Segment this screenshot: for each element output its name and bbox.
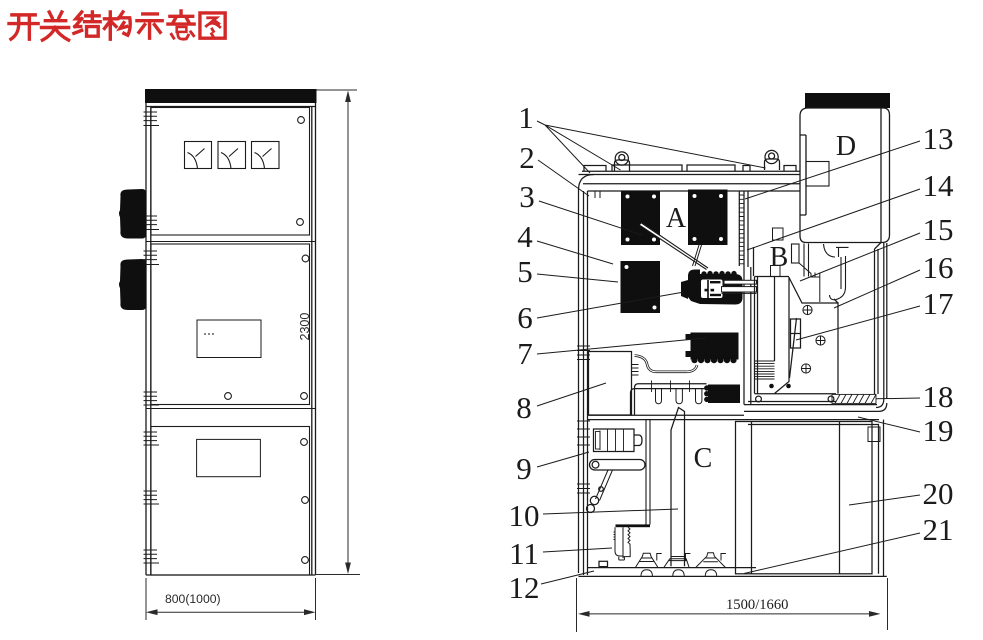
svg-text:5: 5 xyxy=(517,254,533,289)
svg-text:B: B xyxy=(770,242,789,273)
svg-text:16: 16 xyxy=(923,250,954,285)
svg-text:C: C xyxy=(694,443,713,474)
svg-text:7: 7 xyxy=(517,336,533,371)
svg-text:12: 12 xyxy=(509,570,540,605)
svg-text:17: 17 xyxy=(923,286,954,321)
svg-text:6: 6 xyxy=(517,300,533,335)
svg-text:2300: 2300 xyxy=(298,313,312,341)
svg-text:D: D xyxy=(836,131,856,162)
svg-text:10: 10 xyxy=(509,498,540,533)
svg-text:11: 11 xyxy=(509,536,539,571)
svg-text:1500/1660: 1500/1660 xyxy=(726,597,788,613)
svg-text:9: 9 xyxy=(516,451,532,486)
svg-text:20: 20 xyxy=(923,476,954,511)
svg-text:1: 1 xyxy=(518,100,534,135)
svg-text:21: 21 xyxy=(923,512,954,547)
svg-text:3: 3 xyxy=(519,179,535,214)
svg-text:800(1000): 800(1000) xyxy=(165,592,221,606)
svg-text:4: 4 xyxy=(517,219,533,254)
svg-text:A: A xyxy=(666,203,687,234)
svg-text:14: 14 xyxy=(923,168,955,203)
svg-text:2: 2 xyxy=(519,140,535,175)
svg-text:18: 18 xyxy=(923,379,954,414)
svg-text:8: 8 xyxy=(516,390,532,425)
svg-text:15: 15 xyxy=(923,212,954,247)
svg-text:13: 13 xyxy=(923,121,954,156)
svg-text:19: 19 xyxy=(923,413,954,448)
